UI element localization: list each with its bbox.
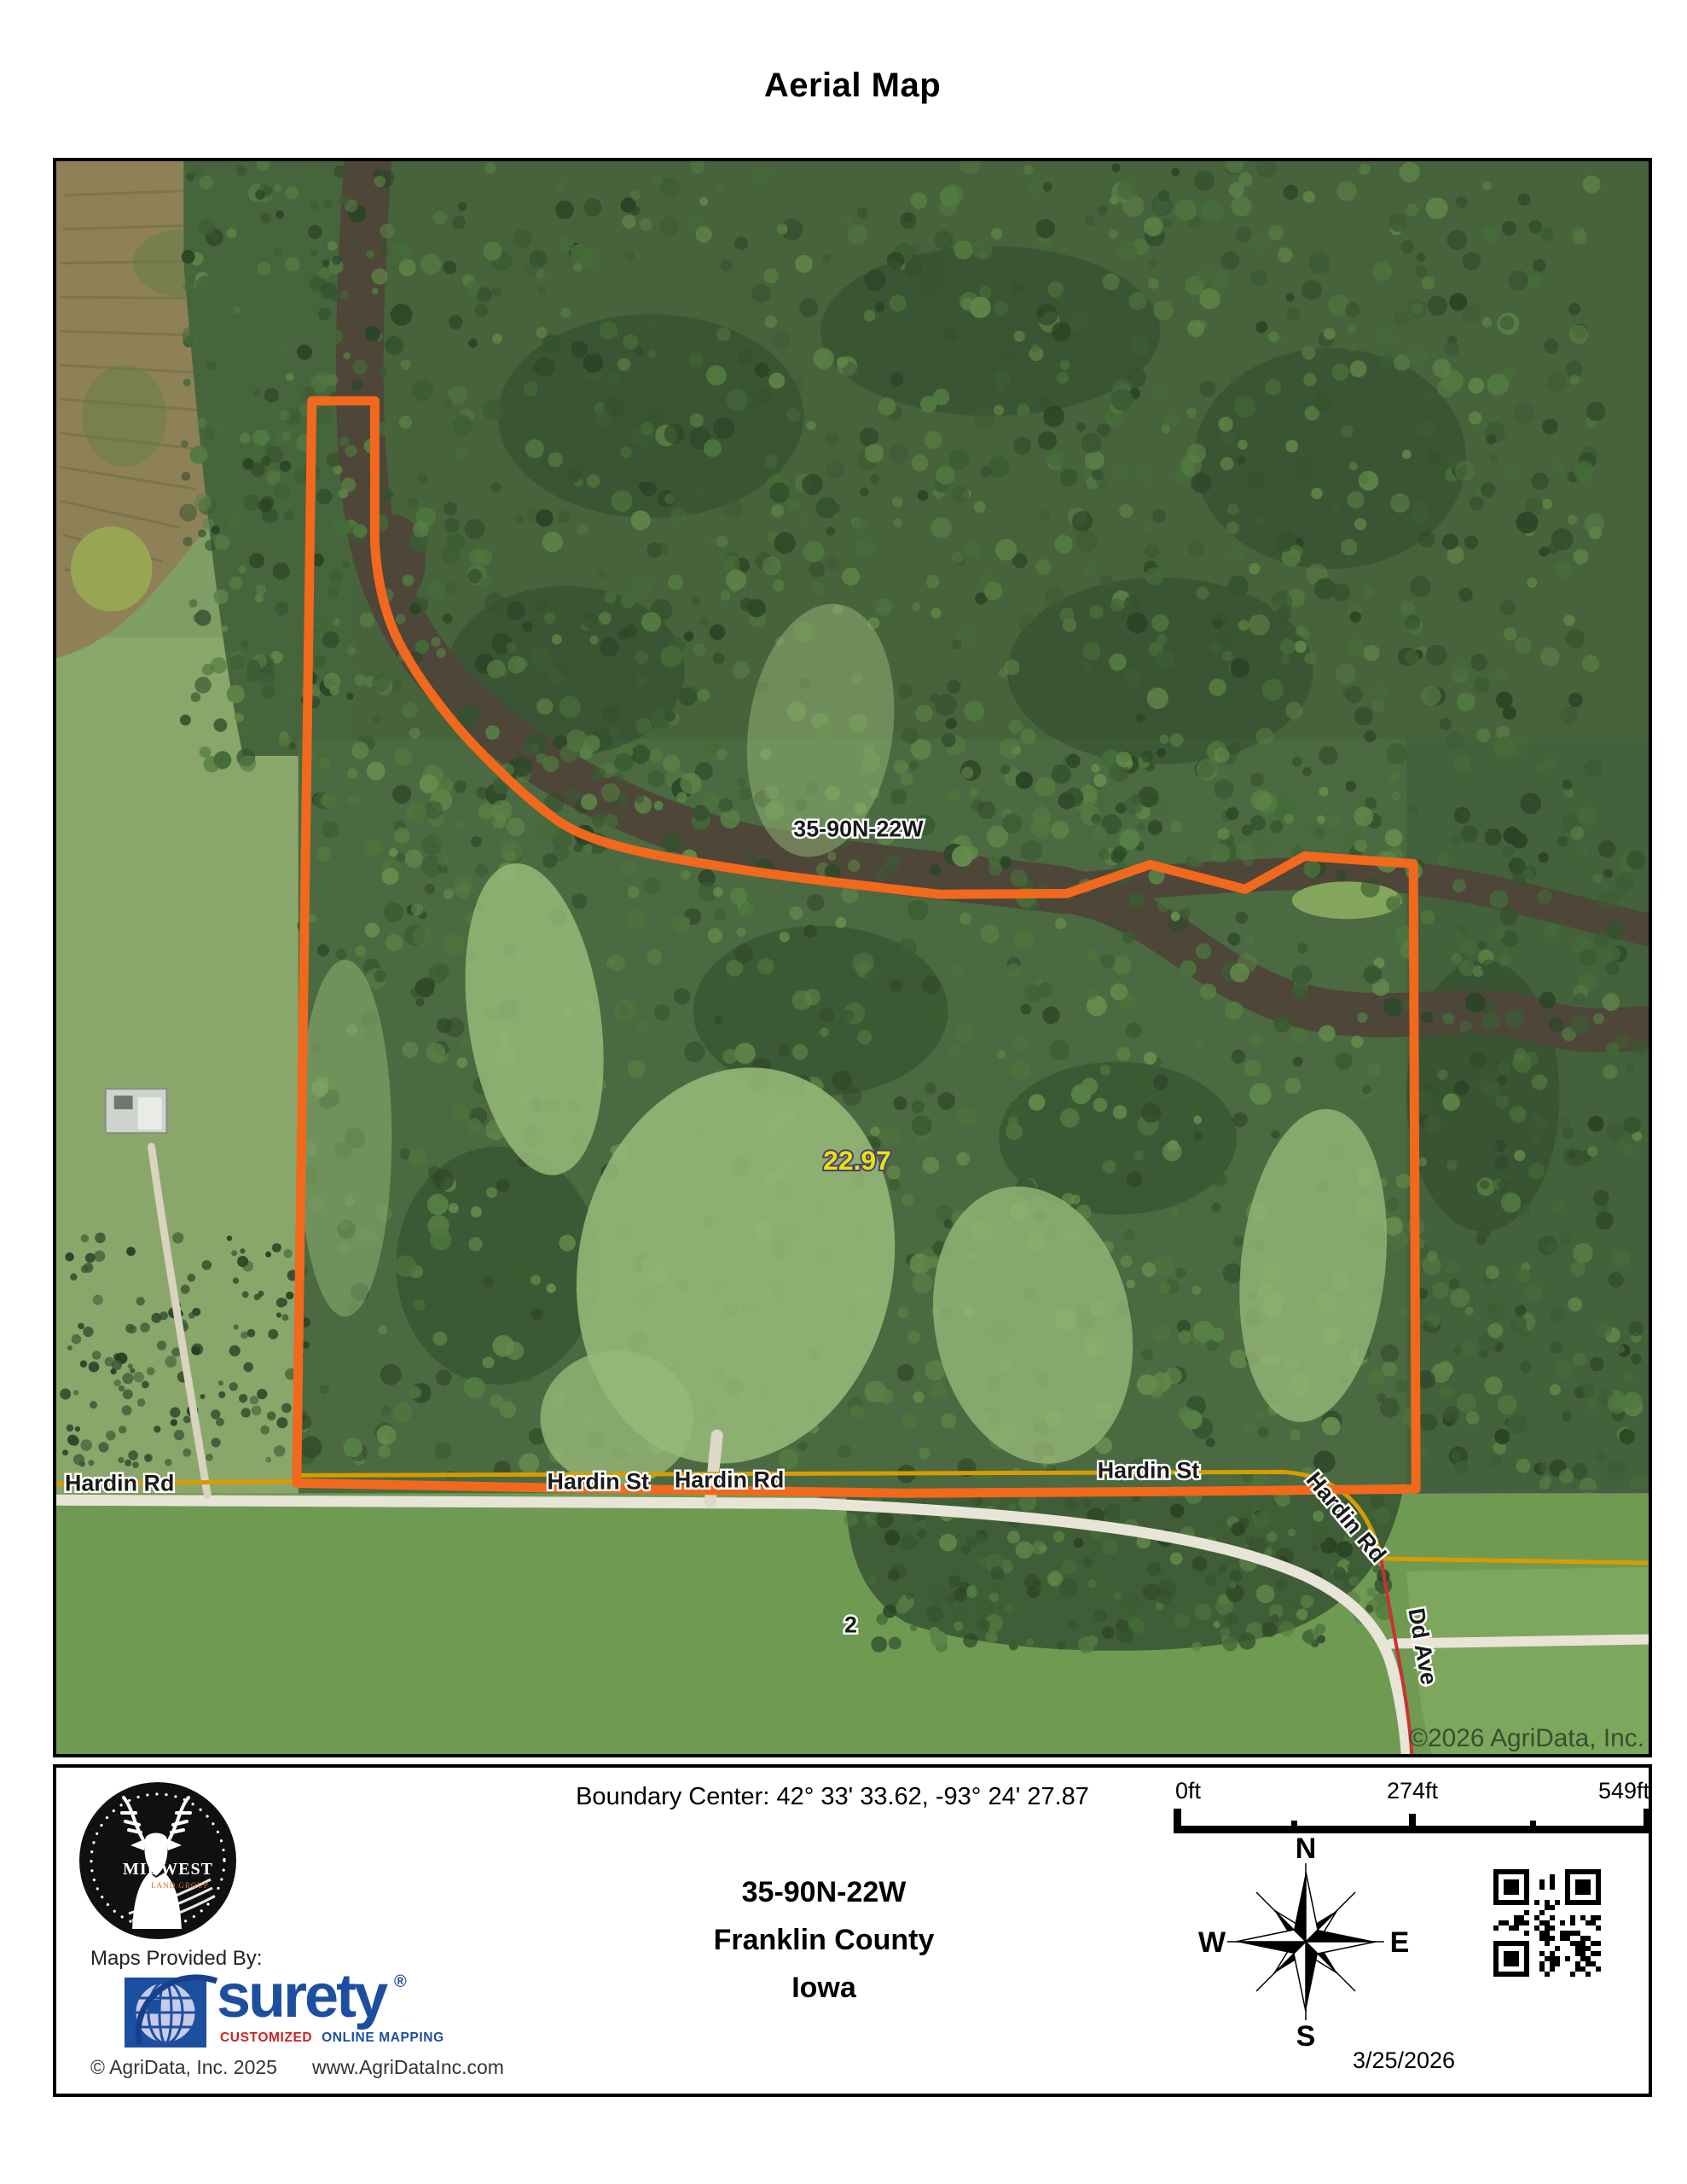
location-section: 35-90N-22W — [653, 1868, 994, 1916]
surety-tagline: CUSTOMIZED ONLINE MAPPING — [220, 2030, 444, 2046]
scale-tick-mid: 274ft — [1387, 1778, 1439, 1804]
location-block: 35-90N-22W Franklin County Iowa — [653, 1868, 994, 2012]
agridata-website: www.AgriDataInc.com — [312, 2056, 504, 2079]
surety-registered-mark: ® — [394, 1972, 407, 1992]
scale-tick-max: 549ft — [1598, 1778, 1650, 1804]
aerial-map-page: Aerial Map — [0, 0, 1687, 2184]
section-label: 35-90N-22W — [793, 816, 924, 842]
qr-code — [1493, 1868, 1602, 1978]
road-label-hardin-st-east: Hardin St — [1098, 1457, 1200, 1483]
map-frame: 35-90N-22W 22.97 Hardin Rd Hardin St Har… — [53, 158, 1652, 1757]
scale-bar-ruler — [1174, 1809, 1651, 1833]
surety-tagline-online-mapping: ONLINE MAPPING — [322, 2030, 444, 2045]
river-island — [1292, 881, 1402, 919]
pond — [71, 526, 153, 612]
boundary-center-text: Boundary Center: 42° 33' 33.62, -93° 24'… — [483, 1783, 1182, 1811]
location-state: Iowa — [653, 1964, 994, 2012]
compass-rose: N E S W — [1195, 1831, 1417, 2053]
acreage-label: 22.97 — [823, 1145, 891, 1176]
map-date: 3/25/2026 — [1293, 2047, 1515, 2074]
farmstead — [106, 1089, 167, 1133]
aerial-map-image: 35-90N-22W 22.97 Hardin Rd Hardin St Har… — [56, 161, 1649, 1754]
mlg-sub: LAND GROUP — [151, 1881, 209, 1890]
map-watermark: ©2026 AgriData, Inc. — [1409, 1724, 1644, 1752]
surety-wordmark: surety — [217, 1966, 386, 2027]
field-patch — [82, 365, 167, 467]
midwest-land-group-logo: MIDWEST LAND GROUP — [77, 1780, 239, 1942]
compass-west: W — [1198, 1926, 1226, 1959]
road-label-hardin-rd-mid: Hardin Rd — [675, 1467, 784, 1492]
agridata-copyright: © AgriData, Inc. 2025 — [90, 2056, 277, 2079]
road-label-hardin-rd-west: Hardin Rd — [65, 1470, 174, 1496]
compass-north: N — [1296, 1833, 1317, 1865]
location-county: Franklin County — [653, 1916, 994, 1964]
page-title: Aerial Map — [53, 67, 1652, 105]
surety-tagline-customized: CUSTOMIZED — [220, 2030, 312, 2045]
mlg-name: MIDWEST — [123, 1860, 213, 1879]
footer: MIDWEST LAND GROUP Maps Provided By: sur… — [53, 1764, 1652, 2097]
compass-east: E — [1390, 1926, 1410, 1959]
road-label-hardin-st-mid: Hardin St — [548, 1468, 650, 1494]
scale-tick-0: 0ft — [1175, 1778, 1202, 1804]
lot-number-label: 2 — [844, 1612, 857, 1638]
surety-globe-logo — [121, 1972, 222, 2051]
